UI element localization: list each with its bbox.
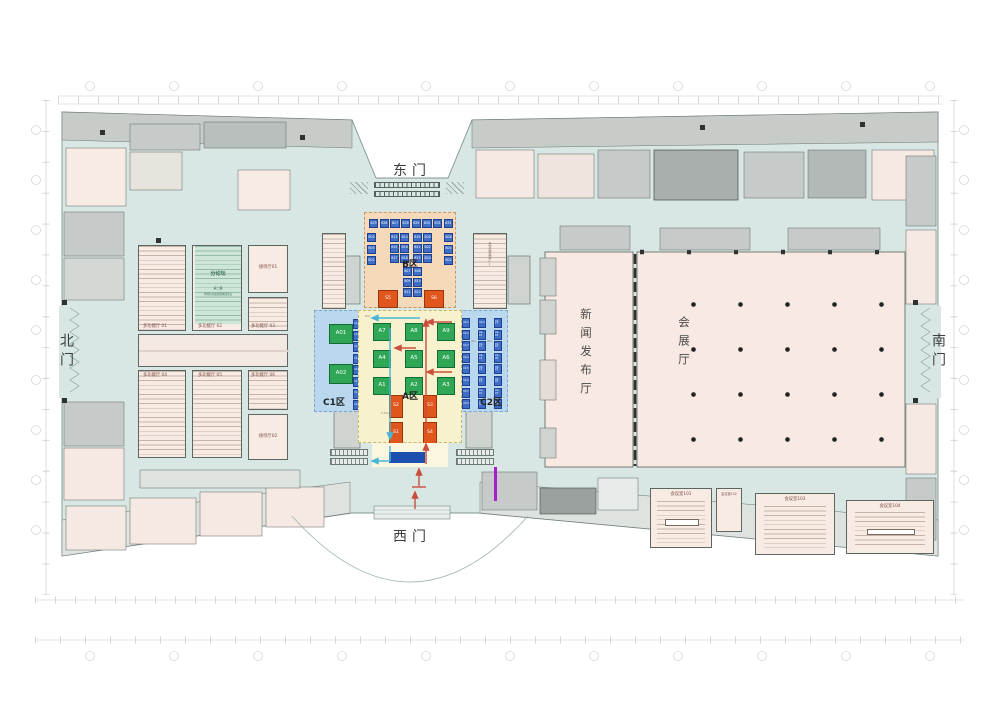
floorplan-sheet: 多功能厅 01 分论坛 第二届 中国礼用品和器械展论坛 多功能厅 02 接待厅0… — [0, 0, 1000, 706]
circulation-arrows — [0, 0, 1000, 706]
